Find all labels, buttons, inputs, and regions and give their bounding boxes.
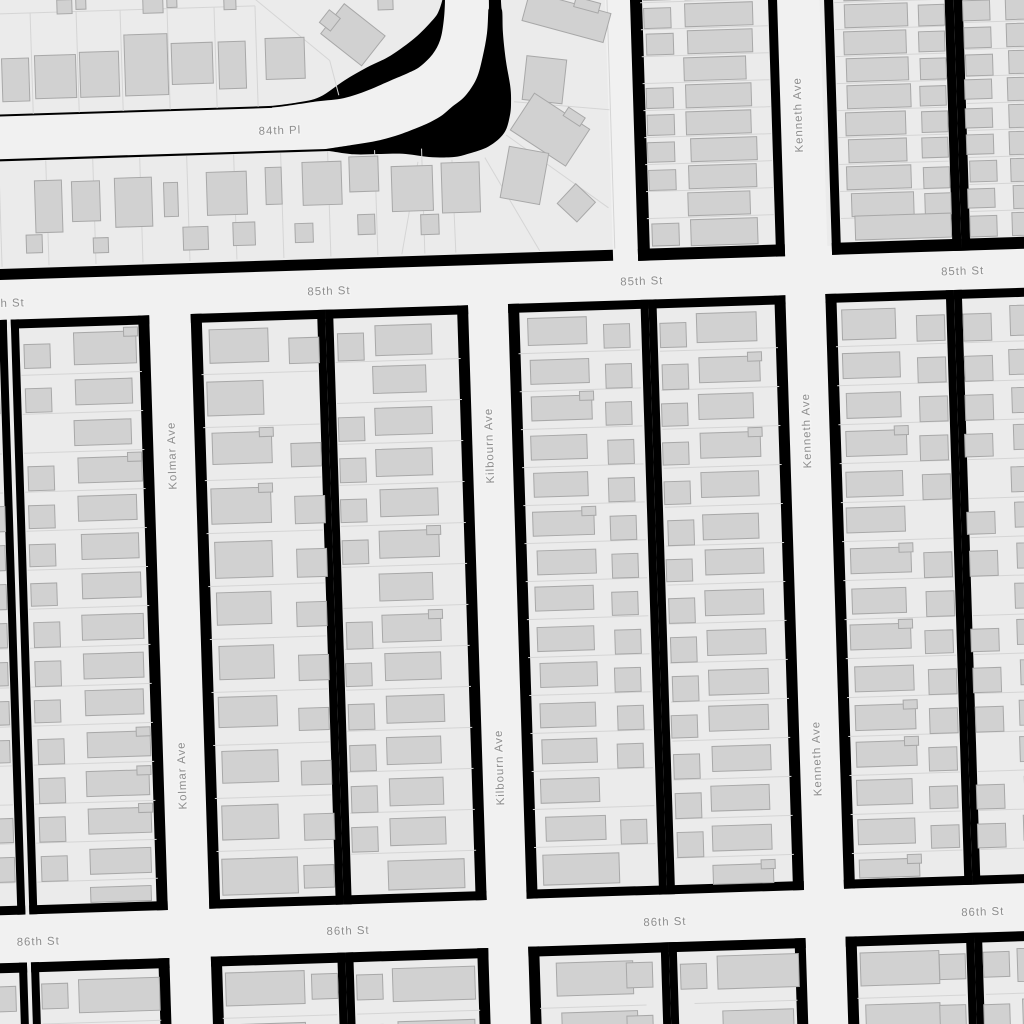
svg-text:86th St: 86th St xyxy=(643,916,686,929)
svg-text:Kenneth Ave: Kenneth Ave xyxy=(791,77,805,153)
svg-text:84th Pl: 84th Pl xyxy=(259,124,302,137)
svg-text:85th St: 85th St xyxy=(0,297,25,310)
svg-text:85th St: 85th St xyxy=(620,275,663,288)
svg-text:86th St: 86th St xyxy=(17,935,60,948)
svg-text:Kenneth Ave: Kenneth Ave xyxy=(800,393,814,469)
svg-text:85th St: 85th St xyxy=(307,285,350,298)
svg-text:Kolmar Ave: Kolmar Ave xyxy=(165,421,179,489)
svg-text:Kolmar Ave: Kolmar Ave xyxy=(176,741,190,809)
svg-text:86th St: 86th St xyxy=(961,906,1004,919)
svg-text:Kilbourn Ave: Kilbourn Ave xyxy=(493,729,507,805)
svg-text:85th St: 85th St xyxy=(941,265,984,278)
svg-text:Kilbourn Ave: Kilbourn Ave xyxy=(483,408,497,484)
svg-text:Kenneth Ave: Kenneth Ave xyxy=(810,721,824,797)
svg-text:86th St: 86th St xyxy=(326,925,369,938)
